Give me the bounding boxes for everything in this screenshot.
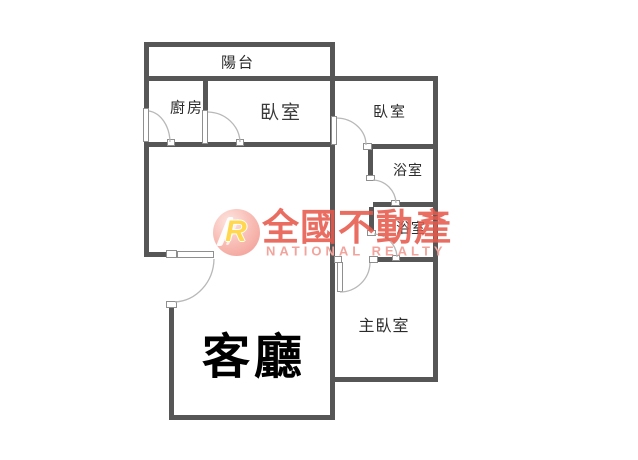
- master-door-arc: [340, 263, 370, 292]
- door-arcs: [0, 0, 638, 460]
- room-label-master-bedroom: 主臥室: [358, 312, 409, 336]
- wall-bath-upper-left: [368, 149, 373, 178]
- wall-bedroom-right-top: [335, 76, 438, 81]
- entry-door-jamb-top: [166, 250, 177, 258]
- bath-upper-door-jamb-top: [366, 175, 375, 181]
- kitchen-door-arc: [149, 111, 170, 142]
- bedroom-top-door-jamb: [236, 139, 244, 146]
- kitchen-door-leaf: [143, 108, 149, 142]
- bedroom-right-door-arc: [337, 118, 366, 145]
- bedroom-right-door-leaf: [331, 116, 337, 145]
- wall-master-bottom: [330, 377, 438, 382]
- master-door-leaf: [337, 262, 343, 292]
- bath-lower-door-arc: [374, 234, 397, 257]
- entry-door-jamb-bottom: [166, 301, 177, 308]
- wall-living-left: [169, 303, 174, 420]
- room-label-bathroom-upper: 浴室: [393, 160, 423, 180]
- room-label-bathroom-lower: 浴室: [396, 218, 426, 238]
- bedroom-top-door-arc: [208, 112, 240, 142]
- room-label-balcony: 陽台: [221, 52, 255, 73]
- wall-central: [330, 42, 335, 420]
- wall-living-bottom: [169, 415, 335, 420]
- bedroom-right-door-jamb: [363, 143, 372, 150]
- entry-door-arc: [175, 259, 214, 302]
- entry-door-leaf: [177, 251, 214, 258]
- kitchen-door-jamb: [167, 139, 175, 146]
- wall-balcony-bottom: [144, 76, 335, 81]
- logo-slash-icon: [216, 217, 234, 246]
- master-door-jamb-right: [369, 256, 378, 263]
- wall-master-top: [371, 257, 438, 262]
- bath-lower-door-jamb-top: [367, 230, 376, 236]
- wall-bath-divider: [373, 202, 438, 207]
- room-label-kitchen: 廚房: [170, 97, 204, 118]
- bath-upper-door-jamb-bottom: [391, 200, 400, 206]
- wall-balcony-top: [144, 42, 335, 47]
- wall-outer-right: [433, 76, 438, 382]
- wall-bedroom-right-bottom: [368, 144, 438, 149]
- logo-slash2-icon: [226, 219, 240, 245]
- logo-letter: R: [225, 215, 247, 249]
- room-label-bedroom-top: 臥室: [260, 98, 302, 125]
- bath-lower-door-jamb-bottom: [392, 255, 400, 261]
- realty-logo-icon: [213, 209, 260, 256]
- realty-watermark: R 全國不動產 NATIONAL REALTY: [0, 0, 638, 460]
- wall-outer-left: [144, 42, 149, 257]
- room-label-bedroom-right: 臥室: [373, 101, 407, 122]
- floor-plan: 陽台 廚房 臥室 臥室 浴室 浴室 主臥室 客廳 R 全國不動產 NATIONA…: [0, 0, 638, 460]
- room-label-living-room: 客廳: [202, 317, 306, 387]
